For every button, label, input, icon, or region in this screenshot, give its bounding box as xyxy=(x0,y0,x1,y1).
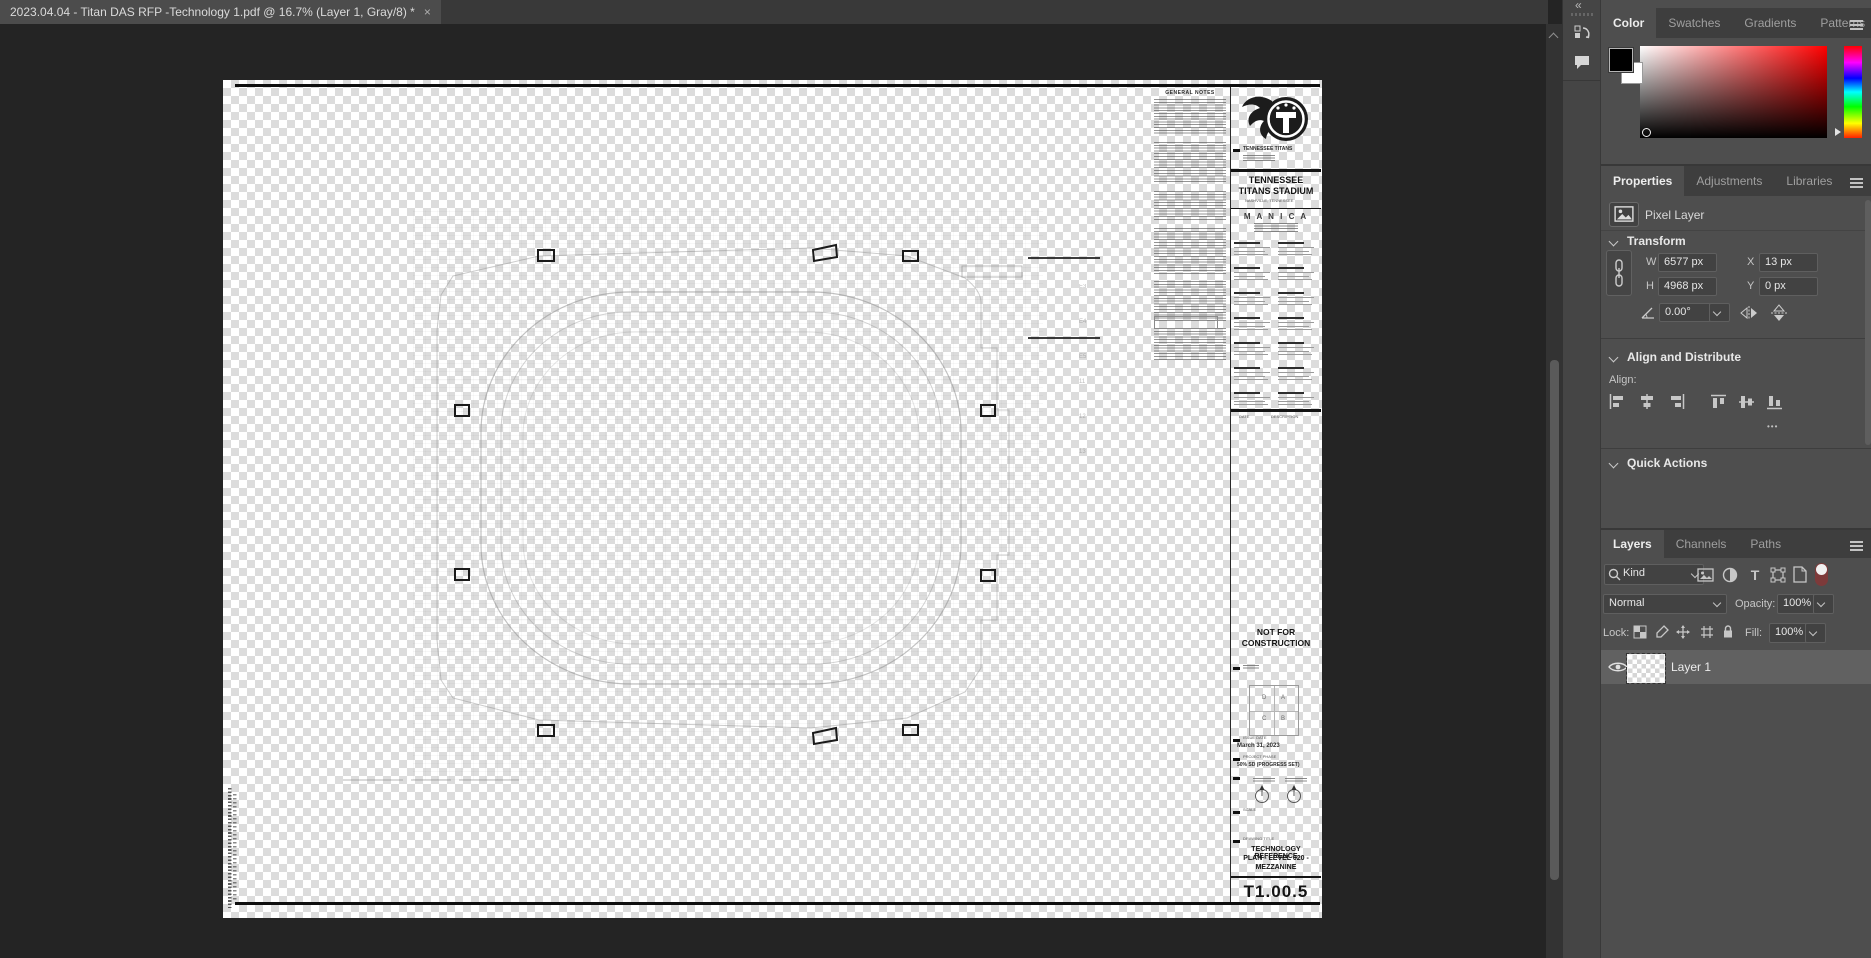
y-field[interactable]: 0 px xyxy=(1759,277,1818,296)
dash-mark xyxy=(1233,667,1240,670)
layer-filter-kind-select[interactable]: Kind xyxy=(1604,564,1704,585)
height-field[interactable]: 4968 px xyxy=(1658,277,1717,296)
divider xyxy=(1601,448,1871,449)
title-block: TENNESSEE TITANS TENNESSEE TITANS STADIU… xyxy=(1230,87,1321,902)
tab-color[interactable]: Color xyxy=(1601,8,1656,38)
sheet-border-bottom xyxy=(235,902,1320,905)
collapse-panels-icon[interactable]: « xyxy=(1575,0,1582,12)
lock-artboard-icon[interactable] xyxy=(1700,625,1714,639)
opacity-dropdown[interactable] xyxy=(1813,594,1834,614)
transform-section-title: Transform xyxy=(1627,234,1686,248)
height-label: H xyxy=(1646,280,1654,292)
tab-channels[interactable]: Channels xyxy=(1664,530,1739,558)
align-left-button[interactable] xyxy=(1609,394,1625,409)
stadium-title-line2: TITANS STADIUM xyxy=(1231,186,1321,196)
panel-dock: » Color Swatches Gradients Patterns Prop… xyxy=(1600,0,1871,958)
dash-mark xyxy=(1233,149,1240,152)
fill-dropdown[interactable] xyxy=(1805,623,1826,643)
plot-stamp-text xyxy=(228,788,237,908)
align-bottom-button[interactable] xyxy=(1767,394,1782,410)
divider xyxy=(1601,230,1871,231)
dash-mark xyxy=(1233,811,1240,814)
color-saturation-field[interactable] xyxy=(1640,46,1827,138)
key-plan-label xyxy=(1243,665,1259,669)
document-tab[interactable]: 2023.04.04 - Titan DAS RFP -Technology 1… xyxy=(0,0,441,24)
rotate-angle-icon xyxy=(1641,307,1655,319)
kind-label: Kind xyxy=(1623,567,1645,579)
sheet-border-top xyxy=(235,84,1320,87)
tab-swatches[interactable]: Swatches xyxy=(1656,8,1732,38)
color-panel-tabs: Color Swatches Gradients Patterns xyxy=(1601,8,1871,38)
notes-paragraph xyxy=(1154,228,1226,274)
panel-menu-icon[interactable] xyxy=(1850,178,1863,180)
layer-visibility-eye-icon[interactable] xyxy=(1608,661,1628,673)
key-plan-quadrant: D xyxy=(1262,695,1266,701)
lock-pixels-icon[interactable] xyxy=(1655,625,1669,639)
rotate-angle-field[interactable]: 0.00° xyxy=(1659,303,1714,322)
document-canvas[interactable]: E3 E4 E5 11 12 13 GENERAL NOTES xyxy=(223,80,1322,918)
not-for-construction-line2: CONSTRUCTION xyxy=(1231,638,1321,648)
chain-link-icon xyxy=(1613,259,1625,287)
lock-all-icon[interactable] xyxy=(1722,624,1734,639)
divider xyxy=(1231,208,1321,209)
color-picker-cursor[interactable] xyxy=(1642,128,1651,137)
key-plan-quadrant: C xyxy=(1262,716,1266,722)
collapse-align-icon[interactable] xyxy=(1609,353,1619,363)
layers-panel: Layers Channels Paths Kind xyxy=(1601,530,1871,958)
properties-panel-tabs: Properties Adjustments Libraries xyxy=(1601,166,1871,196)
notes-paragraph xyxy=(1154,281,1226,321)
stadium-title-line1: TENNESSEE xyxy=(1231,175,1321,185)
close-icon[interactable]: × xyxy=(424,5,431,19)
grid-labels: E3 E4 E5 11 12 13 xyxy=(1079,284,1087,455)
svg-text:E4: E4 xyxy=(1079,319,1087,325)
opacity-field[interactable]: 100% xyxy=(1777,594,1818,614)
tab-adjustments[interactable]: Adjustments xyxy=(1684,166,1774,196)
scrollbar-up-icon[interactable] xyxy=(1549,33,1559,43)
svg-text:E3: E3 xyxy=(1079,284,1087,290)
drawing-title-line3: MEZZANINE xyxy=(1231,864,1321,871)
align-top-button[interactable] xyxy=(1711,394,1726,410)
align-right-button[interactable] xyxy=(1669,394,1685,409)
general-notes-title: GENERAL NOTES xyxy=(1153,90,1227,96)
notes-paragraph xyxy=(1154,328,1226,360)
filter-shape-layers-icon[interactable] xyxy=(1770,567,1786,583)
color-panel: Color Swatches Gradients Patterns xyxy=(1601,0,1871,164)
revision-date-header: DATE xyxy=(1239,415,1249,420)
layer-name[interactable]: Layer 1 xyxy=(1671,660,1711,674)
width-field[interactable]: 6577 px xyxy=(1658,253,1717,272)
equipment-markers xyxy=(455,245,995,744)
project-phase: 50% SD (PROGRESS SET) xyxy=(1237,762,1300,768)
drawing-title-line2: PLAN - LEVEL 020 - xyxy=(1231,855,1321,862)
architect-name: M A N I C A xyxy=(1231,212,1321,221)
flip-horizontal-icon[interactable] xyxy=(1739,306,1759,320)
project-phase-label: PROJECT PHASE xyxy=(1243,755,1276,760)
notes-box xyxy=(1154,316,1218,329)
dash-mark xyxy=(1233,739,1240,742)
divider xyxy=(1601,338,1871,339)
divider xyxy=(1231,876,1321,878)
issue-date: March 31, 2023 xyxy=(1237,743,1280,749)
align-section-title: Align and Distribute xyxy=(1627,350,1741,364)
sheet-number: T1.00.5 xyxy=(1231,882,1321,902)
document-tab-title: 2023.04.04 - Titan DAS RFP -Technology 1… xyxy=(10,5,415,19)
revision-description-header: DESCRIPTION xyxy=(1271,415,1298,420)
key-plan: D A C B xyxy=(1249,685,1299,736)
lock-transparency-icon[interactable] xyxy=(1633,625,1647,639)
quick-actions-section-title: Quick Actions xyxy=(1627,456,1707,470)
tab-patterns[interactable]: Patterns xyxy=(1808,8,1871,38)
dash-mark xyxy=(1233,840,1240,843)
collapse-quick-actions-icon[interactable] xyxy=(1609,459,1619,469)
filter-pixel-layers-icon[interactable] xyxy=(1697,568,1714,582)
stadium-location: NASHVILLE, TENNESSEE xyxy=(1245,199,1293,204)
align-label: Align: xyxy=(1609,374,1637,386)
divider xyxy=(1563,80,1601,81)
key-plan-quadrant: B xyxy=(1281,716,1285,722)
properties-panel: Properties Adjustments Libraries Pixel L… xyxy=(1601,166,1871,528)
align-center-vertical-button[interactable] xyxy=(1739,394,1754,410)
tab-gradients[interactable]: Gradients xyxy=(1732,8,1808,38)
lock-position-icon[interactable] xyxy=(1676,625,1690,639)
align-more-button[interactable]: ••• xyxy=(1767,422,1778,431)
svg-text:T: T xyxy=(1751,567,1760,582)
collapse-transform-icon[interactable] xyxy=(1609,237,1619,247)
scrollbar-thumb[interactable] xyxy=(1550,360,1559,880)
divider xyxy=(1231,169,1321,172)
dash-mark xyxy=(1233,777,1240,780)
collapsed-panel-strip: « xyxy=(1562,0,1601,958)
notes-paragraph xyxy=(1154,191,1226,221)
svg-text:E5: E5 xyxy=(1079,354,1087,360)
flip-vertical-icon[interactable] xyxy=(1771,303,1787,323)
width-label: W xyxy=(1646,256,1656,268)
general-notes-block: GENERAL NOTES xyxy=(1153,90,1227,367)
blend-mode-value: Normal xyxy=(1609,597,1644,609)
tab-properties[interactable]: Properties xyxy=(1601,166,1684,196)
panel-menu-icon[interactable] xyxy=(1850,20,1863,22)
architect-address xyxy=(1254,223,1298,233)
canvas-area[interactable]: E3 E4 E5 11 12 13 GENERAL NOTES xyxy=(0,24,1548,958)
fill-field[interactable]: 100% xyxy=(1769,623,1810,643)
foreground-color-swatch[interactable] xyxy=(1609,48,1633,72)
panel-grip[interactable] xyxy=(1571,13,1593,16)
link-dimensions-button[interactable] xyxy=(1606,250,1632,296)
properties-scrollbar-thumb[interactable] xyxy=(1865,200,1871,445)
north-label xyxy=(1285,778,1307,782)
address-lines xyxy=(1243,155,1275,163)
layer-type-label: Pixel Layer xyxy=(1645,208,1704,222)
y-label: Y xyxy=(1747,280,1754,292)
svg-text:13: 13 xyxy=(1079,449,1086,455)
hue-slider-thumb[interactable] xyxy=(1835,128,1841,136)
svg-text:11: 11 xyxy=(1079,379,1086,385)
tab-libraries[interactable]: Libraries xyxy=(1774,166,1844,196)
notes-paragraph xyxy=(1154,142,1226,184)
fill-label: Fill: xyxy=(1745,627,1762,639)
panel-menu-icon[interactable] xyxy=(1850,541,1863,543)
canvas-vertical-scrollbar[interactable] xyxy=(1546,24,1562,958)
blend-mode-select[interactable]: Normal xyxy=(1603,594,1727,614)
layers-panel-tabs: Layers Channels Paths xyxy=(1601,530,1871,558)
consultant-column xyxy=(1278,242,1316,417)
tab-layers[interactable]: Layers xyxy=(1601,530,1664,558)
history-panel-icon[interactable] xyxy=(1573,24,1591,42)
north-label xyxy=(1253,778,1275,782)
svg-text:12: 12 xyxy=(1079,414,1086,420)
not-for-construction-line1: NOT FOR xyxy=(1231,627,1321,637)
tab-paths[interactable]: Paths xyxy=(1738,530,1793,558)
layer-thumbnail[interactable] xyxy=(1627,654,1665,683)
layer-row-layer1[interactable]: Layer 1 xyxy=(1601,650,1871,684)
comment-panel-icon[interactable] xyxy=(1573,54,1591,70)
x-field[interactable]: 13 px xyxy=(1759,253,1818,272)
filter-adjustment-layers-icon[interactable] xyxy=(1722,567,1738,583)
photoshop-window: 2023.04.04 - Titan DAS RFP -Technology 1… xyxy=(0,0,1871,958)
titans-logo xyxy=(1238,91,1314,147)
hue-slider[interactable] xyxy=(1844,46,1862,138)
scale-label: SCALE xyxy=(1243,808,1256,813)
filter-smart-objects-icon[interactable] xyxy=(1793,566,1807,583)
opacity-label: Opacity: xyxy=(1735,598,1775,610)
align-center-horizontal-button[interactable] xyxy=(1639,394,1655,409)
drawing-title-label: DRAWING TITLE xyxy=(1243,837,1274,842)
filter-toggle-switch[interactable] xyxy=(1815,563,1828,586)
divider xyxy=(1231,409,1321,412)
rotate-angle-dropdown[interactable] xyxy=(1709,303,1730,322)
notes-paragraph xyxy=(1154,99,1226,135)
north-compass-icon xyxy=(1254,784,1270,804)
key-plan-quadrant: A xyxy=(1281,695,1285,701)
lock-label: Lock: xyxy=(1603,627,1629,639)
team-name: TENNESSEE TITANS xyxy=(1243,146,1292,152)
north-compass-icon xyxy=(1286,784,1302,804)
consultant-column xyxy=(1234,242,1272,417)
document-tab-bar: 2023.04.04 - Titan DAS RFP -Technology 1… xyxy=(0,0,1548,24)
x-label: X xyxy=(1747,256,1754,268)
dash-mark xyxy=(1233,758,1240,761)
search-icon xyxy=(1608,568,1621,581)
pixel-layer-icon xyxy=(1609,202,1639,227)
issue-date-label: ISSUE DATE xyxy=(1243,736,1266,741)
filter-type-layers-icon[interactable]: T xyxy=(1748,567,1762,582)
